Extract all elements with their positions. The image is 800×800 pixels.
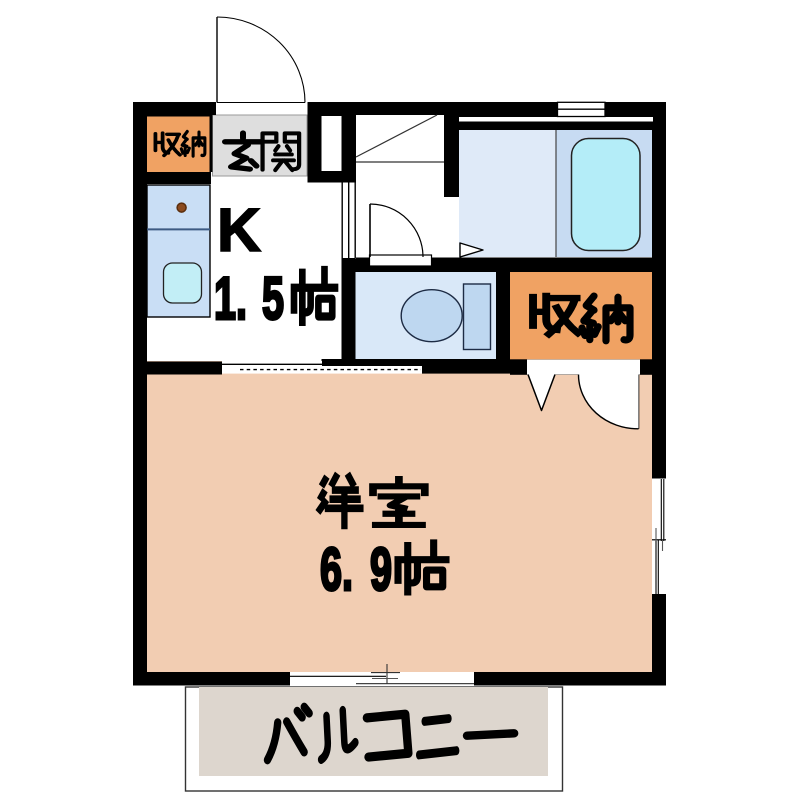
svg-text:1.: 1.	[214, 265, 247, 332]
svg-text:9: 9	[370, 536, 392, 603]
svg-text:5: 5	[262, 265, 284, 332]
svg-text:6.: 6.	[320, 536, 353, 603]
svg-text:K: K	[217, 196, 261, 264]
